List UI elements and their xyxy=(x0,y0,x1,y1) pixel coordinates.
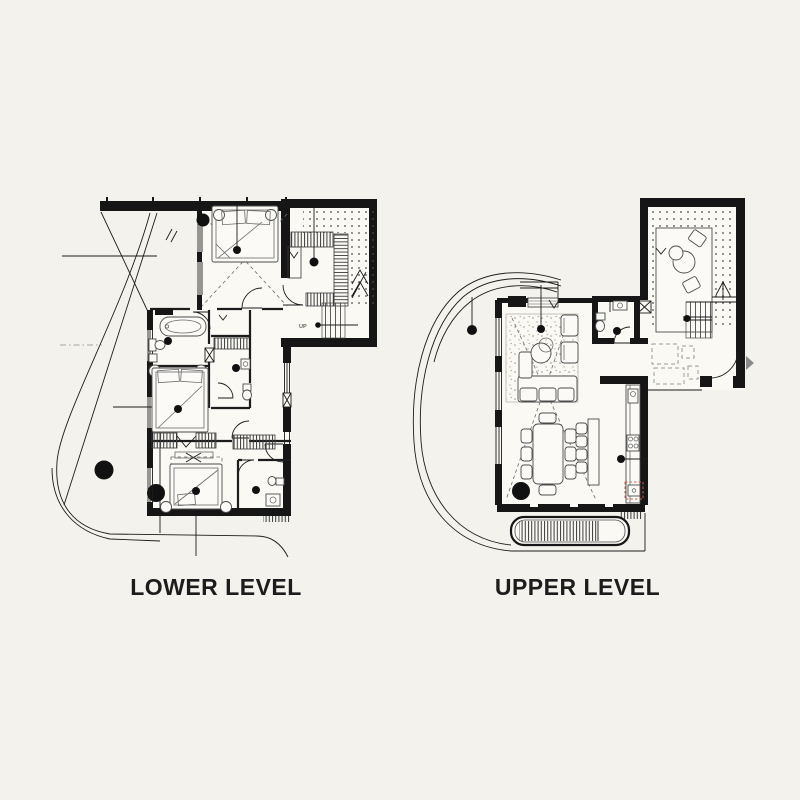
lower-level-label: LOWER LEVEL xyxy=(60,574,372,601)
lower-bedroom3 xyxy=(161,457,232,513)
toilet-icon xyxy=(243,384,252,400)
armchair-icon xyxy=(561,342,578,363)
floor-plan-sheet: UP xyxy=(0,0,800,800)
wardrobe-icon xyxy=(152,433,275,449)
bed-icon xyxy=(212,206,278,262)
bed-icon xyxy=(149,365,208,432)
stair-direction-label: UP xyxy=(299,324,307,330)
upper-level-label: UPPER LEVEL xyxy=(415,574,740,601)
entry-arrow-icon xyxy=(746,356,754,370)
sink-icon xyxy=(613,301,627,310)
floor-plans-canvas: UP xyxy=(0,0,800,800)
tree-icon xyxy=(95,461,114,480)
armchair-icon xyxy=(561,315,578,336)
lower-level-plan: UP xyxy=(52,197,377,557)
toilet-icon xyxy=(596,313,606,332)
toilet-icon xyxy=(268,477,284,486)
tree-icon xyxy=(467,325,477,335)
upper-level-plan xyxy=(413,198,754,551)
bathtub-icon xyxy=(160,317,206,336)
column-icon xyxy=(197,214,210,227)
louver-deck-icon xyxy=(511,517,629,545)
sink-icon xyxy=(149,354,157,362)
cooktop-icon xyxy=(627,435,639,451)
sink-icon xyxy=(266,494,280,506)
tree-icon xyxy=(512,482,530,500)
sink-icon xyxy=(241,359,250,369)
